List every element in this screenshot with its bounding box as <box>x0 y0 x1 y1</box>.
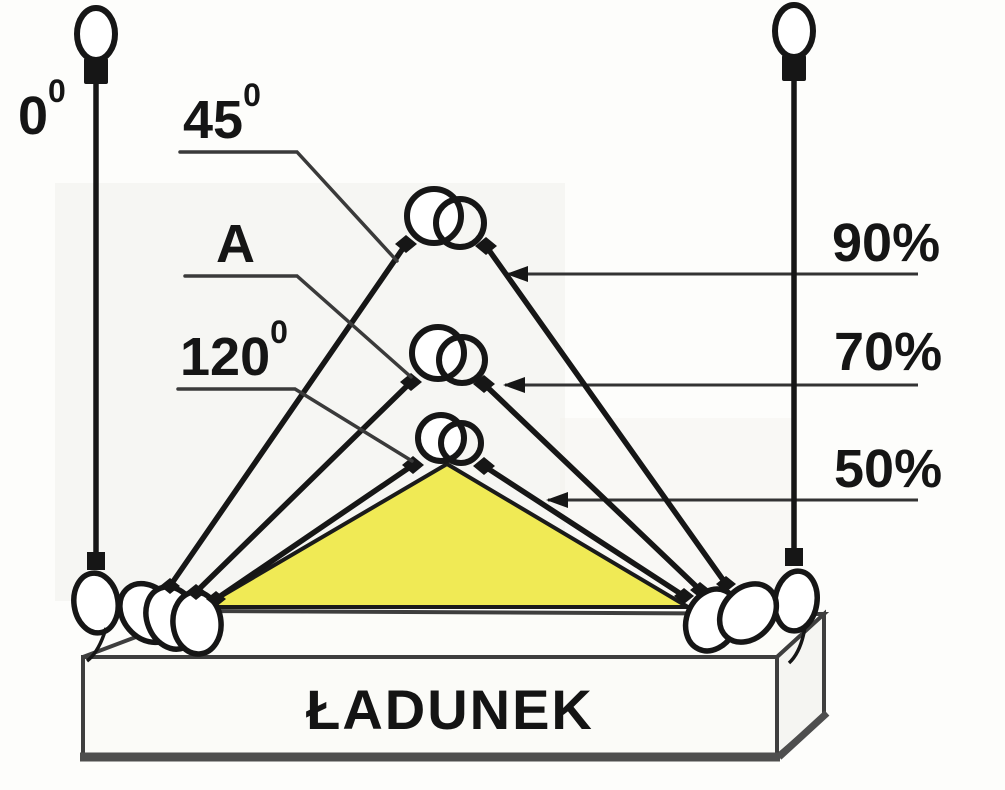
label-angleA: A <box>216 214 255 274</box>
label-45deg-value: 45 <box>183 90 243 150</box>
label-0deg-sup: 0 <box>48 73 66 109</box>
rope-clamp-icon <box>782 55 806 81</box>
sling-angle-diagram: ŁADUNEK <box>0 0 1005 790</box>
label-0deg-value: 0 <box>18 86 48 146</box>
rope-clamp-icon <box>785 548 803 566</box>
rope-clamp-icon <box>87 552 105 570</box>
diagram-canvas: ŁADUNEK <box>0 0 1005 790</box>
load-label: ŁADUNEK <box>306 678 594 741</box>
label-45deg-sup: 0 <box>243 77 261 113</box>
rope-clamp-icon <box>84 58 108 84</box>
label-120deg-sup: 0 <box>270 314 288 350</box>
label-70pct: 70% <box>834 322 942 382</box>
label-angleA-value: A <box>216 214 255 274</box>
label-90pct: 90% <box>832 213 940 273</box>
label-45deg: 450 <box>183 77 261 150</box>
lifting-eye-icon <box>77 8 115 60</box>
lifting-eye-icon <box>775 5 813 57</box>
label-0deg: 00 <box>18 73 66 146</box>
label-50pct: 50% <box>834 439 942 499</box>
label-120deg-value: 120 <box>180 327 270 387</box>
